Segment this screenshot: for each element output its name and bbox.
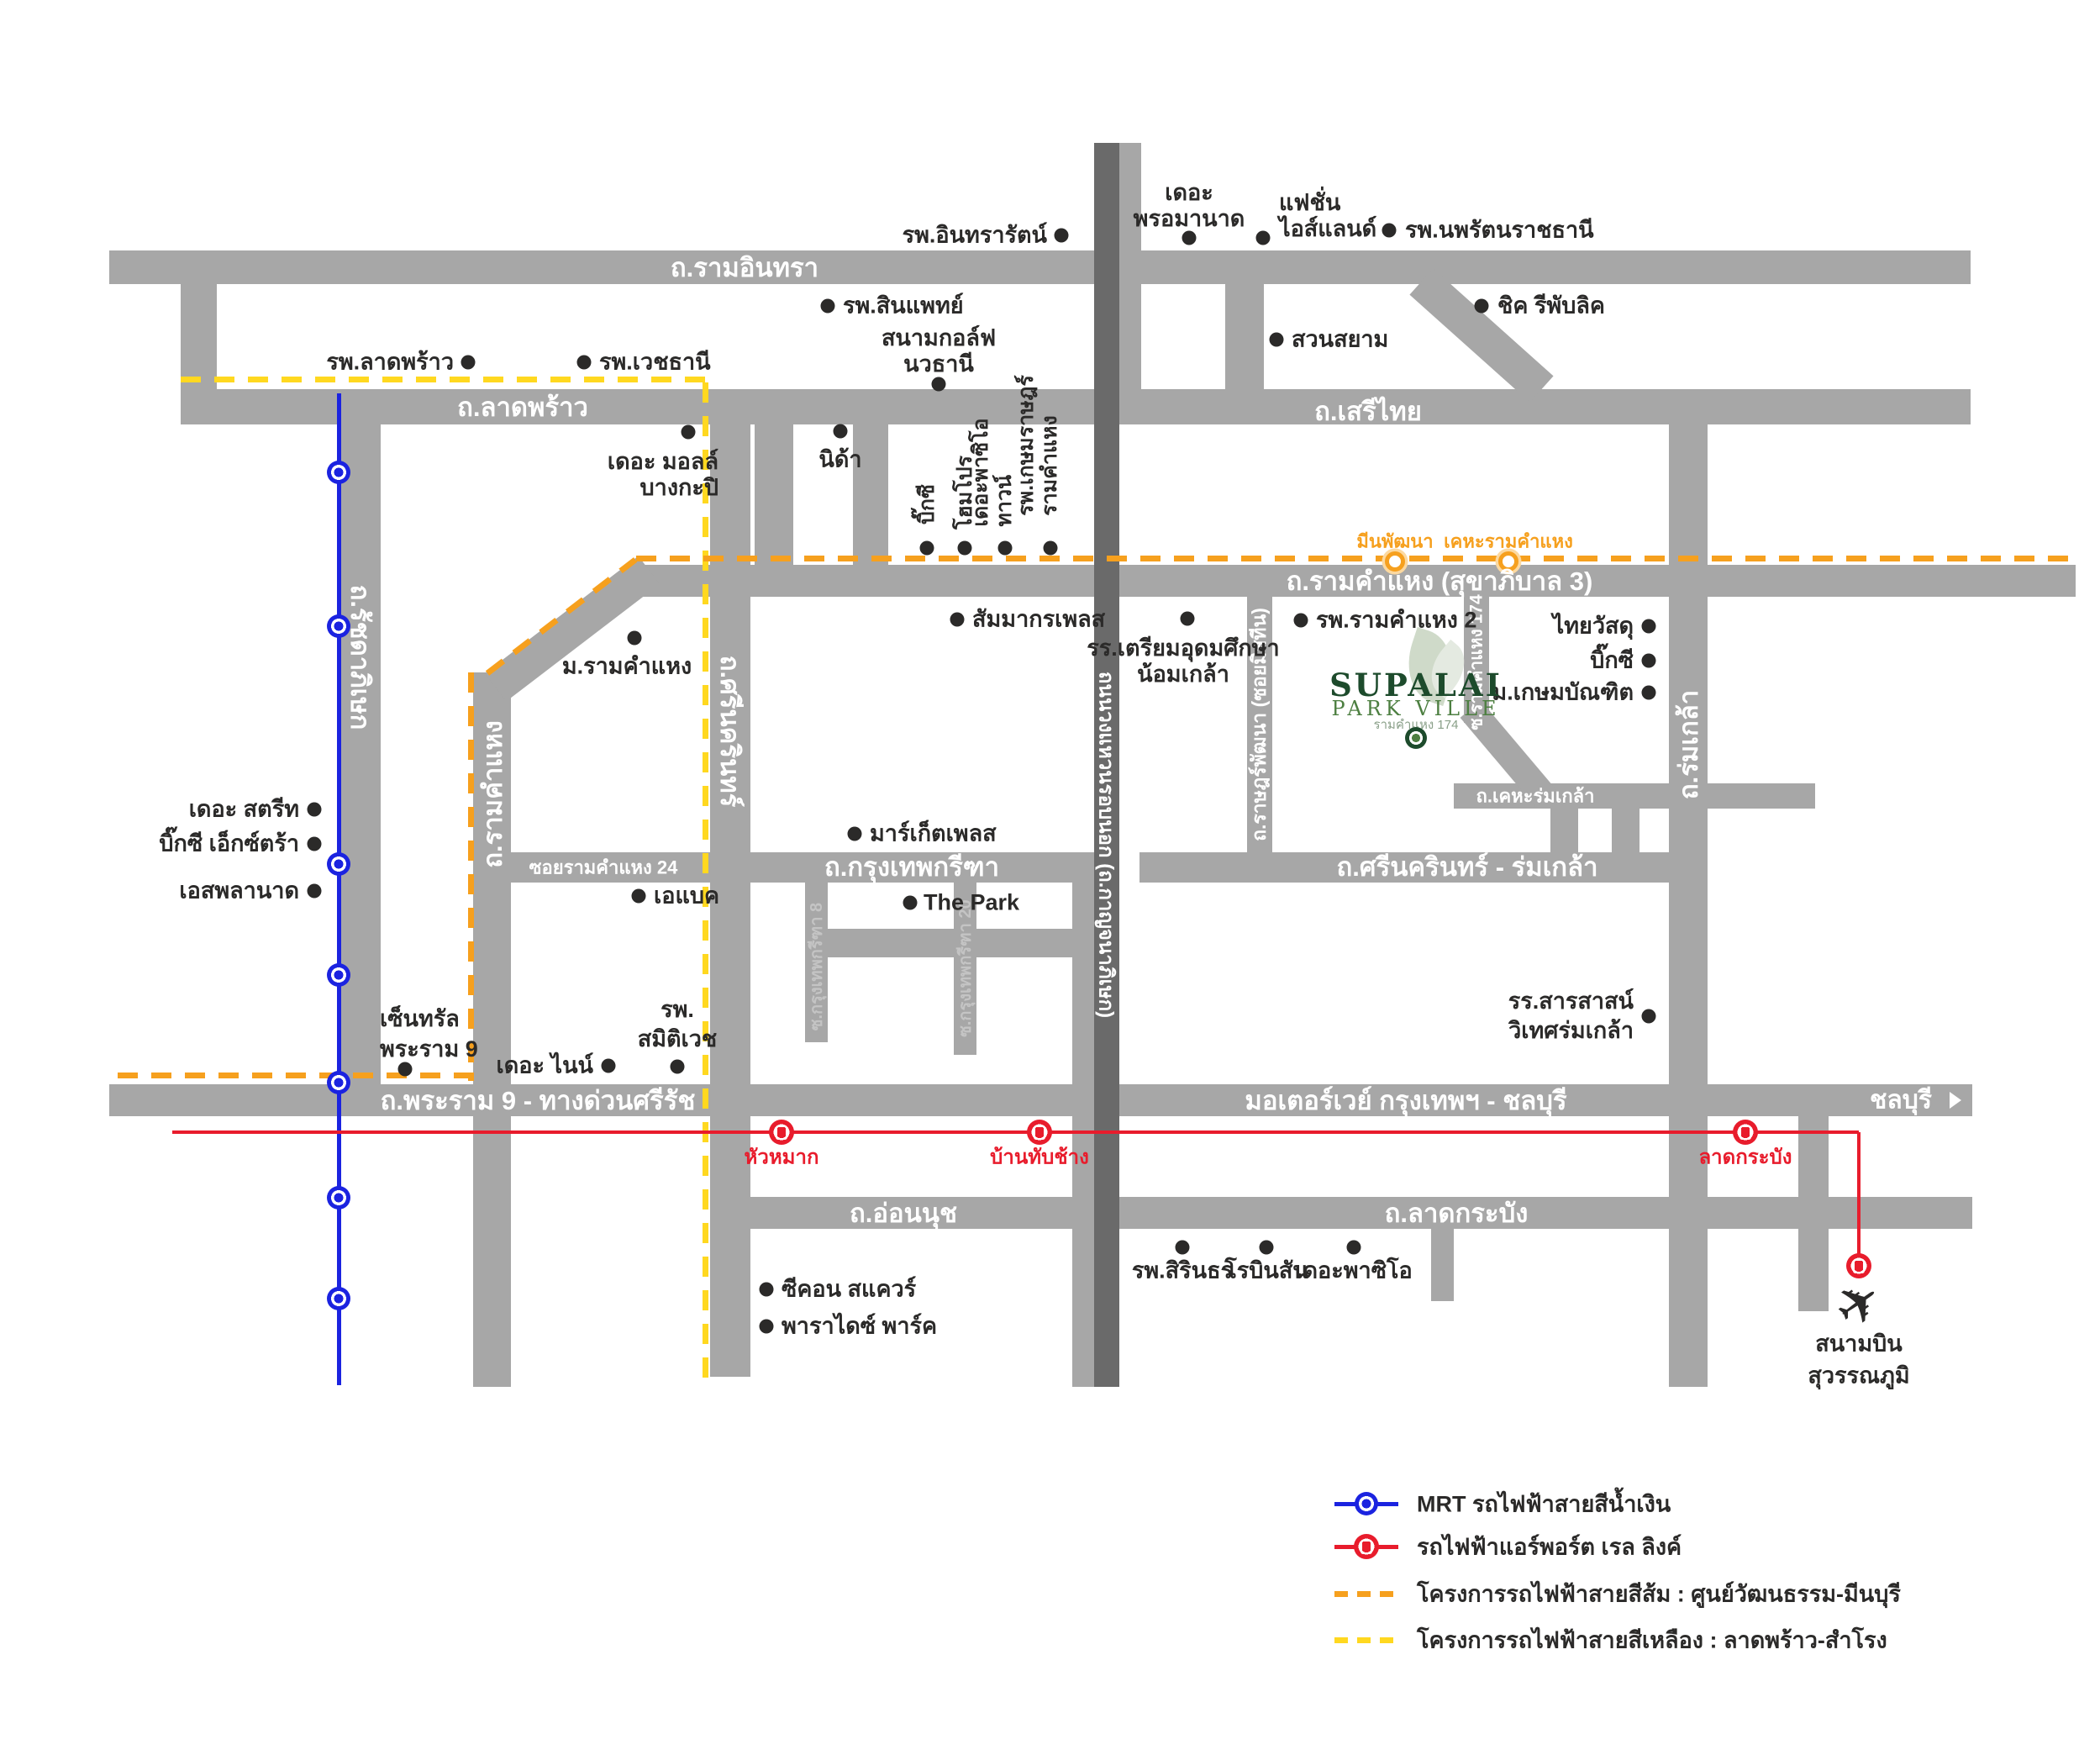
hospital-intrarat-dot	[1055, 229, 1069, 243]
big-c-extra: บิ๊กซี เอ็กซ์ตร้า	[159, 831, 299, 857]
landmark-label-line: พาราไดซ์ พาร์ค	[782, 1314, 937, 1340]
hospital-sirindhorn-dot	[1176, 1241, 1190, 1255]
triamudom-nomklao-school-dot	[1181, 612, 1195, 626]
label-ramkhamhaeng-vert: ถ.รามคำแหง	[471, 720, 513, 868]
kasemrad-ramkhamhaeng-hospital-dot	[1044, 541, 1058, 556]
the-promenade-dot	[1182, 231, 1197, 245]
thai-watsadu-dot	[1642, 619, 1656, 634]
yellow-line	[703, 382, 708, 1380]
label-soi-ramkh-24: ซอยรามคำแหง 24	[529, 853, 678, 883]
mrt-blue-line	[337, 393, 341, 1385]
hospital-nopparat: รพ.นพรัตนราชธานี	[1405, 218, 1594, 244]
landmark-label-line: เดอะ ไนน์	[497, 1053, 593, 1079]
label-rama9: ถ.พระราม 9 - ทางด่วนศรีรัช	[381, 1079, 696, 1121]
big-c-romklao: บิ๊กซี	[1590, 648, 1634, 674]
train-icon	[1034, 1125, 1045, 1140]
kasem-bundit-university: ม.เกษมบัณฑิต	[1492, 680, 1634, 706]
landmark-label-line: ไอส์แลนด์	[1279, 216, 1376, 242]
legend-mrt-blue-station	[1355, 1492, 1378, 1515]
landmark-label-line: สัมมากรเพลส	[972, 607, 1105, 633]
yellow-line	[181, 377, 708, 382]
the-paseo: เดอะพาซิโอ	[1295, 1258, 1412, 1284]
road-diag-chic	[1409, 268, 1553, 402]
label-soi-kreetha-20: ซ.กรุงเทพกรีฑา 20	[951, 899, 978, 1036]
big-c-extra-dot	[308, 837, 322, 851]
golf-navathanee: สนามกอล์ฟนวธานี	[882, 325, 996, 377]
landmark-label-line: เดอะ มอลล์	[608, 449, 718, 475]
landmark-label-line: เอสพลานาด	[179, 878, 299, 904]
the-street: เดอะ สตรีท	[189, 797, 299, 823]
esplanade: เอสพลานาด	[179, 878, 299, 904]
big-c-ramkhamhaeng-dot	[920, 541, 934, 556]
label-ramkhamhaeng-suk3: ถ.รามคำแหง (สุขาภิบาล 3)	[1287, 560, 1593, 602]
landmark-label-line: สวนสยาม	[1292, 327, 1388, 353]
road-suansiam	[1225, 284, 1264, 395]
airport-rail-link-branch	[1857, 1132, 1861, 1266]
legend-yellow-line-line	[1334, 1637, 1398, 1643]
abac: เอแบค	[654, 883, 719, 909]
legend-orange-line-label: โครงการรถไฟฟ้าสายสีส้ม : ศูนย์วัฒนธรรม-ม…	[1417, 1576, 1901, 1612]
landmark-label-line: รร.เตรียมอุดมศึกษา	[1087, 635, 1279, 661]
the-paseo-town: เดอะพาซิโอทาวน์	[969, 418, 1016, 526]
abac-dot	[632, 889, 646, 904]
airport-label: สนามบิน	[1815, 1325, 1903, 1362]
airport-rail-link	[172, 1130, 1859, 1134]
landmark-label-line: รพ.	[638, 995, 718, 1025]
train-icon	[1739, 1125, 1751, 1140]
label-soi-kreetha-8: ซ.กรุงเทพกรีฑา 8	[803, 903, 829, 1030]
the-nine: เดอะ ไนน์	[497, 1053, 593, 1079]
road-stub-motorway-ladkrabang	[1798, 1116, 1829, 1311]
market-place-dot	[848, 827, 862, 841]
landmark-label-line: น้อมเกล้า	[1087, 661, 1279, 688]
landmark-label-line: ม.เกษมบัณฑิต	[1492, 680, 1634, 706]
hospital-sirindhorn: รพ.สิรินธร	[1132, 1258, 1233, 1284]
map-canvas: หัวหมากบ้านทับช้างลาดกระบังมีนพัฒนาเคหะร…	[0, 0, 2100, 1755]
paradise-park: พาราไดซ์ พาร์ค	[782, 1314, 937, 1340]
landmark-label-line: รพ.ลาดพร้าว	[326, 350, 454, 376]
kasem-bundit-university-dot	[1642, 686, 1656, 700]
central-rama9: เซ็นทรัลพระราม 9	[380, 1004, 478, 1064]
hospital-samitivej-dot	[671, 1060, 685, 1074]
landmark-label-line: นวธานี	[882, 351, 996, 377]
the-park: The Park	[924, 890, 1019, 916]
homepro-dot	[958, 541, 972, 556]
hospital-intrarat: รพ.อินทรารัตน์	[903, 223, 1047, 249]
label-ratchadaphisek: ถ.รัชดาภิเษก	[339, 585, 382, 730]
landmark-label-line: วิเทศร่มเกล้า	[1508, 1016, 1634, 1046]
mrt-blue-station-4	[327, 1071, 350, 1094]
road-stub-ladkrabang-south	[1431, 1229, 1454, 1301]
train-icon	[1361, 1540, 1372, 1554]
station-lat-krabang-label: ลาดกระบัง	[1698, 1141, 1792, 1173]
landmark-label-line: เดอะพาซิโอ	[969, 418, 992, 526]
golf-navathanee-dot	[932, 377, 946, 392]
landmark-label-line: นิด้า	[818, 447, 861, 473]
hospital-synphaet-dot	[821, 299, 835, 314]
fashion-island: แฟชั่นไอส์แลนด์	[1279, 190, 1376, 242]
airport-label: สุวรรณภูมิ	[1808, 1357, 1909, 1394]
legend-yellow-line-label: โครงการรถไฟฟ้าสายสีเหลือง : ลาดพร้าว-สำโ…	[1417, 1622, 1887, 1658]
big-c-romklao-dot	[1642, 654, 1656, 668]
road-ladprao-connector	[181, 250, 217, 424]
landmark-label-line: รพ.เวชธานี	[599, 350, 711, 376]
landmark-label-line: ซีคอน สแควร์	[782, 1277, 916, 1303]
chic-republic: ชิค รีพับลิค	[1497, 293, 1605, 319]
label-srinakarin: ถ.ศรีนครินทร์	[709, 656, 751, 808]
label-ladprao: ถ.ลาดพร้าว	[457, 386, 588, 428]
landmark-label-line: รร.สารสาสน์	[1508, 987, 1634, 1016]
kasemrad-ramkhamhaeng-hospital: รพ.เกษมราษฎร์รามคำแหง	[1014, 375, 1061, 516]
road-nida-west	[755, 424, 793, 567]
legend-mrt-blue-label: MRT รถไฟฟ้าสายสีน้ำเงิน	[1417, 1486, 1671, 1522]
hospital-synphaet: รพ.สินแพทย์	[843, 293, 964, 319]
seacon-square-dot	[760, 1283, 774, 1297]
landmark-label-line: บางกะปิ	[608, 475, 718, 501]
label-motorway: มอเตอร์เวย์ กรุงเทพฯ - ชลบุรี	[1245, 1079, 1566, 1121]
road-ramintra	[109, 250, 1971, 284]
the-mall-bangkapi-dot	[682, 425, 696, 440]
legend-airport-rail-link-station	[1354, 1534, 1379, 1559]
landmark-label-line: รพ.อินทรารัตน์	[903, 223, 1047, 249]
landmark-label-line: เดอะพาซิโอ	[1295, 1258, 1412, 1284]
big-c-ramkhamhaeng: บิ๊กซี	[915, 484, 939, 524]
landmark-label-line: เอแบค	[654, 883, 719, 909]
the-paseo-town-dot	[998, 541, 1013, 556]
mrt-blue-station-5	[327, 1186, 350, 1210]
fashion-island-dot	[1256, 231, 1271, 245]
the-promenade: เดอะพรอมานาด	[1134, 180, 1245, 232]
paradise-park-dot	[760, 1320, 774, 1334]
triamudom-nomklao-school: รร.เตรียมอุดมศึกษาน้อมเกล้า	[1087, 635, 1279, 688]
road-ratchadaphisek	[340, 389, 381, 1116]
hospital-ladprao-dot	[461, 356, 476, 370]
esplanade-dot	[308, 884, 322, 899]
label-kanchanaphisek: ถนนวงแหวนรอบนอก (ถ.กาญจนาภิเษก)	[1091, 672, 1124, 1018]
market-place: มาร์เก็ตเพลส	[870, 821, 997, 847]
landmark-label-line: รามคำแหง	[1038, 375, 1061, 516]
legend-airport-rail-link-label: รถไฟฟ้าแอร์พอร์ต เรล ลิงค์	[1417, 1529, 1682, 1565]
landmark-label-line: เดอะ	[1134, 180, 1245, 206]
the-street-dot	[308, 803, 322, 817]
the-nine-dot	[602, 1059, 616, 1073]
robinson-dot	[1260, 1241, 1274, 1255]
legend-orange-line-line	[1334, 1591, 1398, 1597]
landmark-label-line: ม.รามคำแหง	[562, 654, 692, 680]
landmark-label-line: The Park	[924, 890, 1019, 916]
landmark-label-line: รพ.สินแพทย์	[843, 293, 964, 319]
mrt-blue-station-3	[327, 963, 350, 987]
landmark-label-line: พรอมานาด	[1134, 206, 1245, 232]
station-hua-mak-label: หัวหมาก	[745, 1141, 819, 1173]
hospital-vejthani: รพ.เวชธานี	[599, 350, 711, 376]
landmark-label-line: พระราม 9	[380, 1034, 478, 1064]
hospital-ladprao: รพ.ลาดพร้าว	[326, 350, 454, 376]
landmark-label-line: สนามกอล์ฟ	[882, 325, 996, 351]
road-romklao	[1669, 402, 1708, 1387]
road-nida-east	[853, 424, 888, 567]
sarasas-witaed-romklao-school: รร.สารสาสน์วิเทศร่มเกล้า	[1508, 987, 1634, 1046]
station-ban-thap-chang-label: บ้านทับช้าง	[990, 1141, 1089, 1173]
station-kheha-ramkhamhaeng-label: เคหะรามคำแหง	[1444, 527, 1573, 556]
landmark-label-line: บิ๊กซี	[1590, 648, 1634, 674]
sammakorn-place-dot	[950, 613, 965, 627]
ramkhamhaeng-university: ม.รามคำแหง	[562, 654, 692, 680]
station-min-pattana-label: มีนพัฒนา	[1356, 527, 1433, 556]
thai-watsadu: ไทยวัสดุ	[1553, 614, 1634, 640]
landmark-label-line: บิ๊กซี เอ็กซ์ตร้า	[159, 831, 299, 857]
chonburi-label: ชลบุรี	[1870, 1081, 1932, 1120]
landmark-label-line: มาร์เก็ตเพลส	[870, 821, 997, 847]
hospital-vejthani-dot	[577, 356, 592, 370]
hospital-samitivej: รพ.สมิติเวช	[638, 995, 718, 1054]
label-krungthepkreetha: ถ.กรุงเทพกรีฑา	[824, 846, 999, 888]
label-serithai: ถ.เสรีไทย	[1314, 390, 1422, 432]
landmark-label-line: ไทยวัสดุ	[1553, 614, 1634, 640]
the-park-dot	[903, 896, 918, 910]
label-srinakarin-romklao: ถ.ศรีนครินทร์ - ร่มเกล้า	[1337, 846, 1598, 888]
landmark-label-line: แฟชั่น	[1279, 190, 1376, 216]
the-paseo-dot	[1347, 1241, 1361, 1255]
label-ramintra: ถ.รามอินทรา	[671, 246, 818, 288]
landmark-label-line: รพ.เกษมราษฎร์	[1014, 375, 1038, 516]
road-diag-ramkhamhaeng-bend	[485, 556, 660, 701]
landmark-label-line: รพ.นพรัตนราชธานี	[1405, 218, 1594, 244]
train-icon	[776, 1125, 787, 1140]
hospital-ramkhamhaeng-2-dot	[1294, 614, 1308, 628]
ramkhamhaeng-university-dot	[628, 631, 642, 646]
suan-siam: สวนสยาม	[1292, 327, 1388, 353]
label-ladkrabang: ถ.ลาดกระบัง	[1385, 1192, 1529, 1234]
landmark-label-line: บิ๊กซี	[915, 484, 939, 524]
central-rama9-dot	[398, 1062, 413, 1077]
landmark-label-line: ชิค รีพับลิค	[1497, 293, 1605, 319]
road-stub-keha-b	[1612, 809, 1639, 852]
sammakorn-place: สัมมากรเพลส	[972, 607, 1105, 633]
landmark-label-line: ทาวน์	[992, 418, 1016, 526]
mrt-blue-station-2	[327, 852, 350, 876]
seacon-square: ซีคอน สแควร์	[782, 1277, 916, 1303]
chic-republic-dot	[1475, 299, 1489, 314]
the-mall-bangkapi: เดอะ มอลล์บางกะปิ	[608, 449, 718, 501]
landmark-label-line: รพ.สิรินธร	[1132, 1258, 1233, 1284]
sarasas-witaed-romklao-school-dot	[1642, 1009, 1656, 1024]
mrt-blue-station-6	[327, 1287, 350, 1310]
supalai-park-ville-marker	[1405, 727, 1427, 749]
hospital-ramkhamhaeng-2: รพ.รามคำแหง 2	[1316, 608, 1476, 634]
label-romklao: ถ.ร่มเกล้า	[1667, 690, 1709, 799]
nida-dot	[834, 424, 848, 439]
landmark-label-line: รพ.รามคำแหง 2	[1316, 608, 1476, 634]
suan-siam-dot	[1270, 333, 1284, 347]
hospital-nopparat-dot	[1382, 224, 1397, 238]
landmark-label-line: เซ็นทรัล	[380, 1004, 478, 1034]
chonburi-arrow-icon	[1950, 1092, 1961, 1109]
label-onnut: ถ.อ่อนนุช	[850, 1192, 957, 1234]
landmark-label-line: สมิติเวช	[638, 1025, 718, 1054]
landmark-label-line: เดอะ สตรีท	[189, 797, 299, 823]
orange-line	[118, 1072, 474, 1078]
label-keha-romklao: ถ.เคหะร่มเกล้า	[1476, 782, 1595, 811]
mrt-blue-station-0	[327, 461, 350, 484]
nida: นิด้า	[818, 447, 861, 473]
